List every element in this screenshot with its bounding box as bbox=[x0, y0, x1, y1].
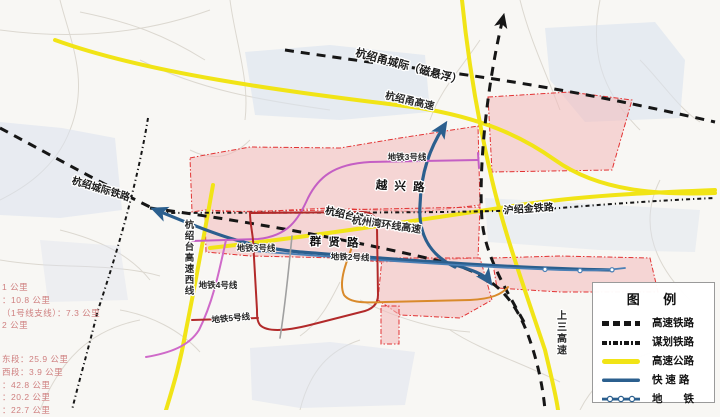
legend-item-hsr: 高速铁路 bbox=[602, 313, 705, 332]
label-shangsan-expressway: 上三高速 bbox=[555, 309, 567, 356]
yellow-line-swatch-icon bbox=[602, 357, 640, 365]
legend-item-metro: 地 铁 bbox=[602, 389, 705, 408]
transit-planning-map: 杭绍甬城际（磁悬浮） 杭绍甬高速 地铁3号线 越 兴 路 杭绍城际铁路 杭绍台铁… bbox=[0, 0, 720, 410]
blue-line-with-stations-swatch-icon bbox=[602, 394, 640, 404]
label-metro-line-3-east: 地铁3号线 bbox=[388, 152, 427, 162]
stats-line: 西段：3.9 公里 bbox=[2, 366, 68, 379]
legend-item-highway: 高速公路 bbox=[602, 351, 705, 370]
distance-stats-lower: 东段：25.9 公里 西段：3.9 公里 ：42.8 公里 ：20.2 公里 ：… bbox=[2, 353, 68, 417]
metro-line-3-terminus-tick bbox=[478, 153, 479, 168]
stats-line: 2 公里 bbox=[2, 319, 100, 332]
stats-line: ：42.8 公里 bbox=[2, 379, 68, 392]
label-metro-line-2: 地铁2号线 bbox=[331, 251, 371, 262]
legend-label: 高速铁路 bbox=[652, 315, 694, 330]
stats-line: ：22.7 公里 bbox=[2, 404, 68, 417]
stats-line: ：20.2 公里 bbox=[2, 391, 68, 404]
label-metro-line-3-west: 地铁3号线 bbox=[237, 243, 276, 253]
stats-line: 东段：25.9 公里 bbox=[2, 353, 68, 366]
legend-item-planned-rail: 谋划铁路 bbox=[602, 332, 705, 351]
label-metro-line-4: 地铁4号线 bbox=[199, 280, 238, 290]
stats-line: （1号线支线）：7.3 公里 bbox=[2, 307, 100, 320]
blue-line-swatch-icon bbox=[602, 376, 640, 384]
label-metro-line-5: 地铁5号线 bbox=[211, 311, 251, 324]
legend-title: 图 例 bbox=[608, 289, 705, 308]
distance-stats-upper: 1 公里 ：10.8 公里 （1号线支线）：7.3 公里 2 公里 bbox=[2, 281, 100, 332]
legend-label: 谋划铁路 bbox=[652, 334, 694, 349]
legend-label: 快 速 路 bbox=[652, 372, 689, 387]
stats-line: ：10.8 公里 bbox=[2, 294, 100, 307]
map-legend: 图 例 高速铁路 谋划铁路 高速公路 快 速 路 地 铁 bbox=[592, 282, 715, 403]
legend-label: 地 铁 bbox=[652, 391, 694, 406]
black-dashdot-line-swatch-icon bbox=[602, 338, 640, 346]
legend-item-expressway: 快 速 路 bbox=[602, 370, 705, 389]
label-hangshaotai-west-expressway: 杭绍台高速西线 bbox=[183, 219, 195, 297]
legend-label: 高速公路 bbox=[652, 353, 694, 368]
black-dashed-line-swatch-icon bbox=[602, 319, 640, 327]
stats-line: 1 公里 bbox=[2, 281, 100, 294]
zone-small-bottom bbox=[381, 306, 399, 344]
